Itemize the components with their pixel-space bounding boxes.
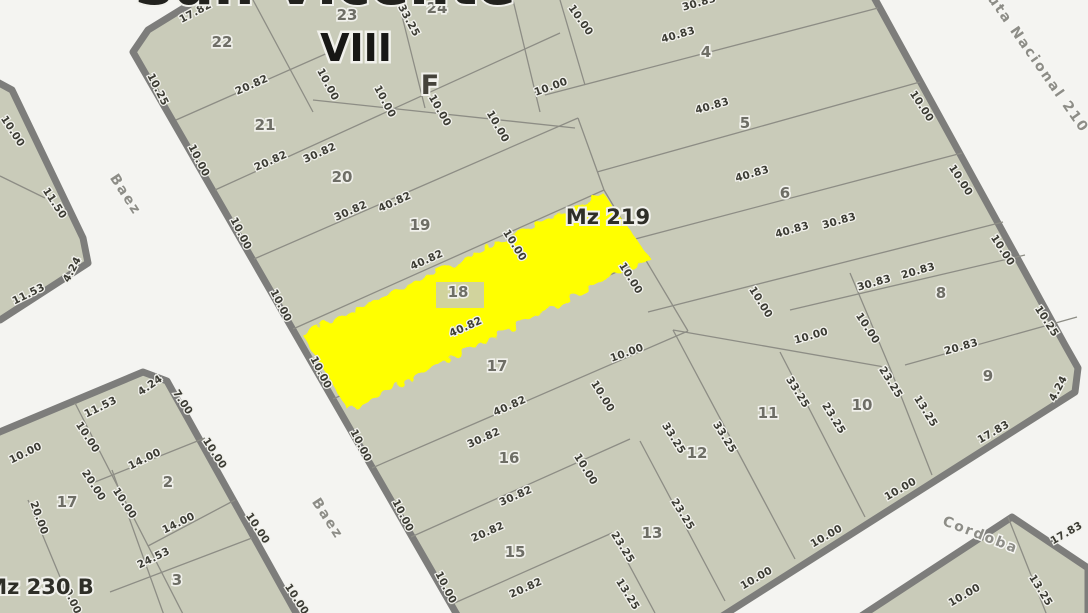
street-name: Ruta Nacional 210 (977, 0, 1088, 136)
parcel-number: 9 (983, 367, 993, 385)
dimension-label: 17.83 (1048, 520, 1084, 548)
parcel-number: 8 (936, 284, 946, 302)
street-name: Baez (106, 171, 144, 218)
parcel-number: 2 (163, 473, 173, 491)
parcel-number: 20 (332, 168, 353, 186)
parcel-number: 22 (212, 33, 233, 51)
zone-label-viii: VIII (320, 26, 392, 70)
parcel-number: 16 (499, 449, 520, 467)
clipped-map-title: San Vicente (134, 0, 516, 18)
parcel-number: 3 (172, 571, 182, 589)
parcel-number: 11 (758, 404, 779, 422)
cadastral-map-viewport[interactable]: 17.8210.2510.0010.0010.0010.0010.0010.00… (0, 0, 1088, 613)
parcel-number: 17 (57, 493, 78, 511)
block-label-mz-230-b: Mz 230 B (0, 575, 94, 599)
parcel-number: 5 (740, 114, 750, 132)
parcel-number: 21 (255, 116, 276, 134)
block-upper-left[interactable] (0, 78, 88, 320)
parcel-number: 19 (410, 216, 431, 234)
block-label-mz-219: Mz 219 (566, 205, 650, 229)
parcel-number: 6 (780, 184, 790, 202)
parcel-number: 13 (642, 524, 663, 542)
parcel-number: 15 (505, 543, 526, 561)
section-label-f: F (421, 70, 439, 101)
parcel-number: 17 (487, 357, 508, 375)
parcel-number: 12 (687, 444, 708, 462)
cadastral-map[interactable]: 17.8210.2510.0010.0010.0010.0010.0010.00… (0, 0, 1088, 613)
street-name: Baez (308, 495, 346, 542)
parcel-number: 10 (852, 396, 873, 414)
parcel-number: 4 (701, 43, 711, 61)
parcel-number: 18 (448, 283, 469, 301)
